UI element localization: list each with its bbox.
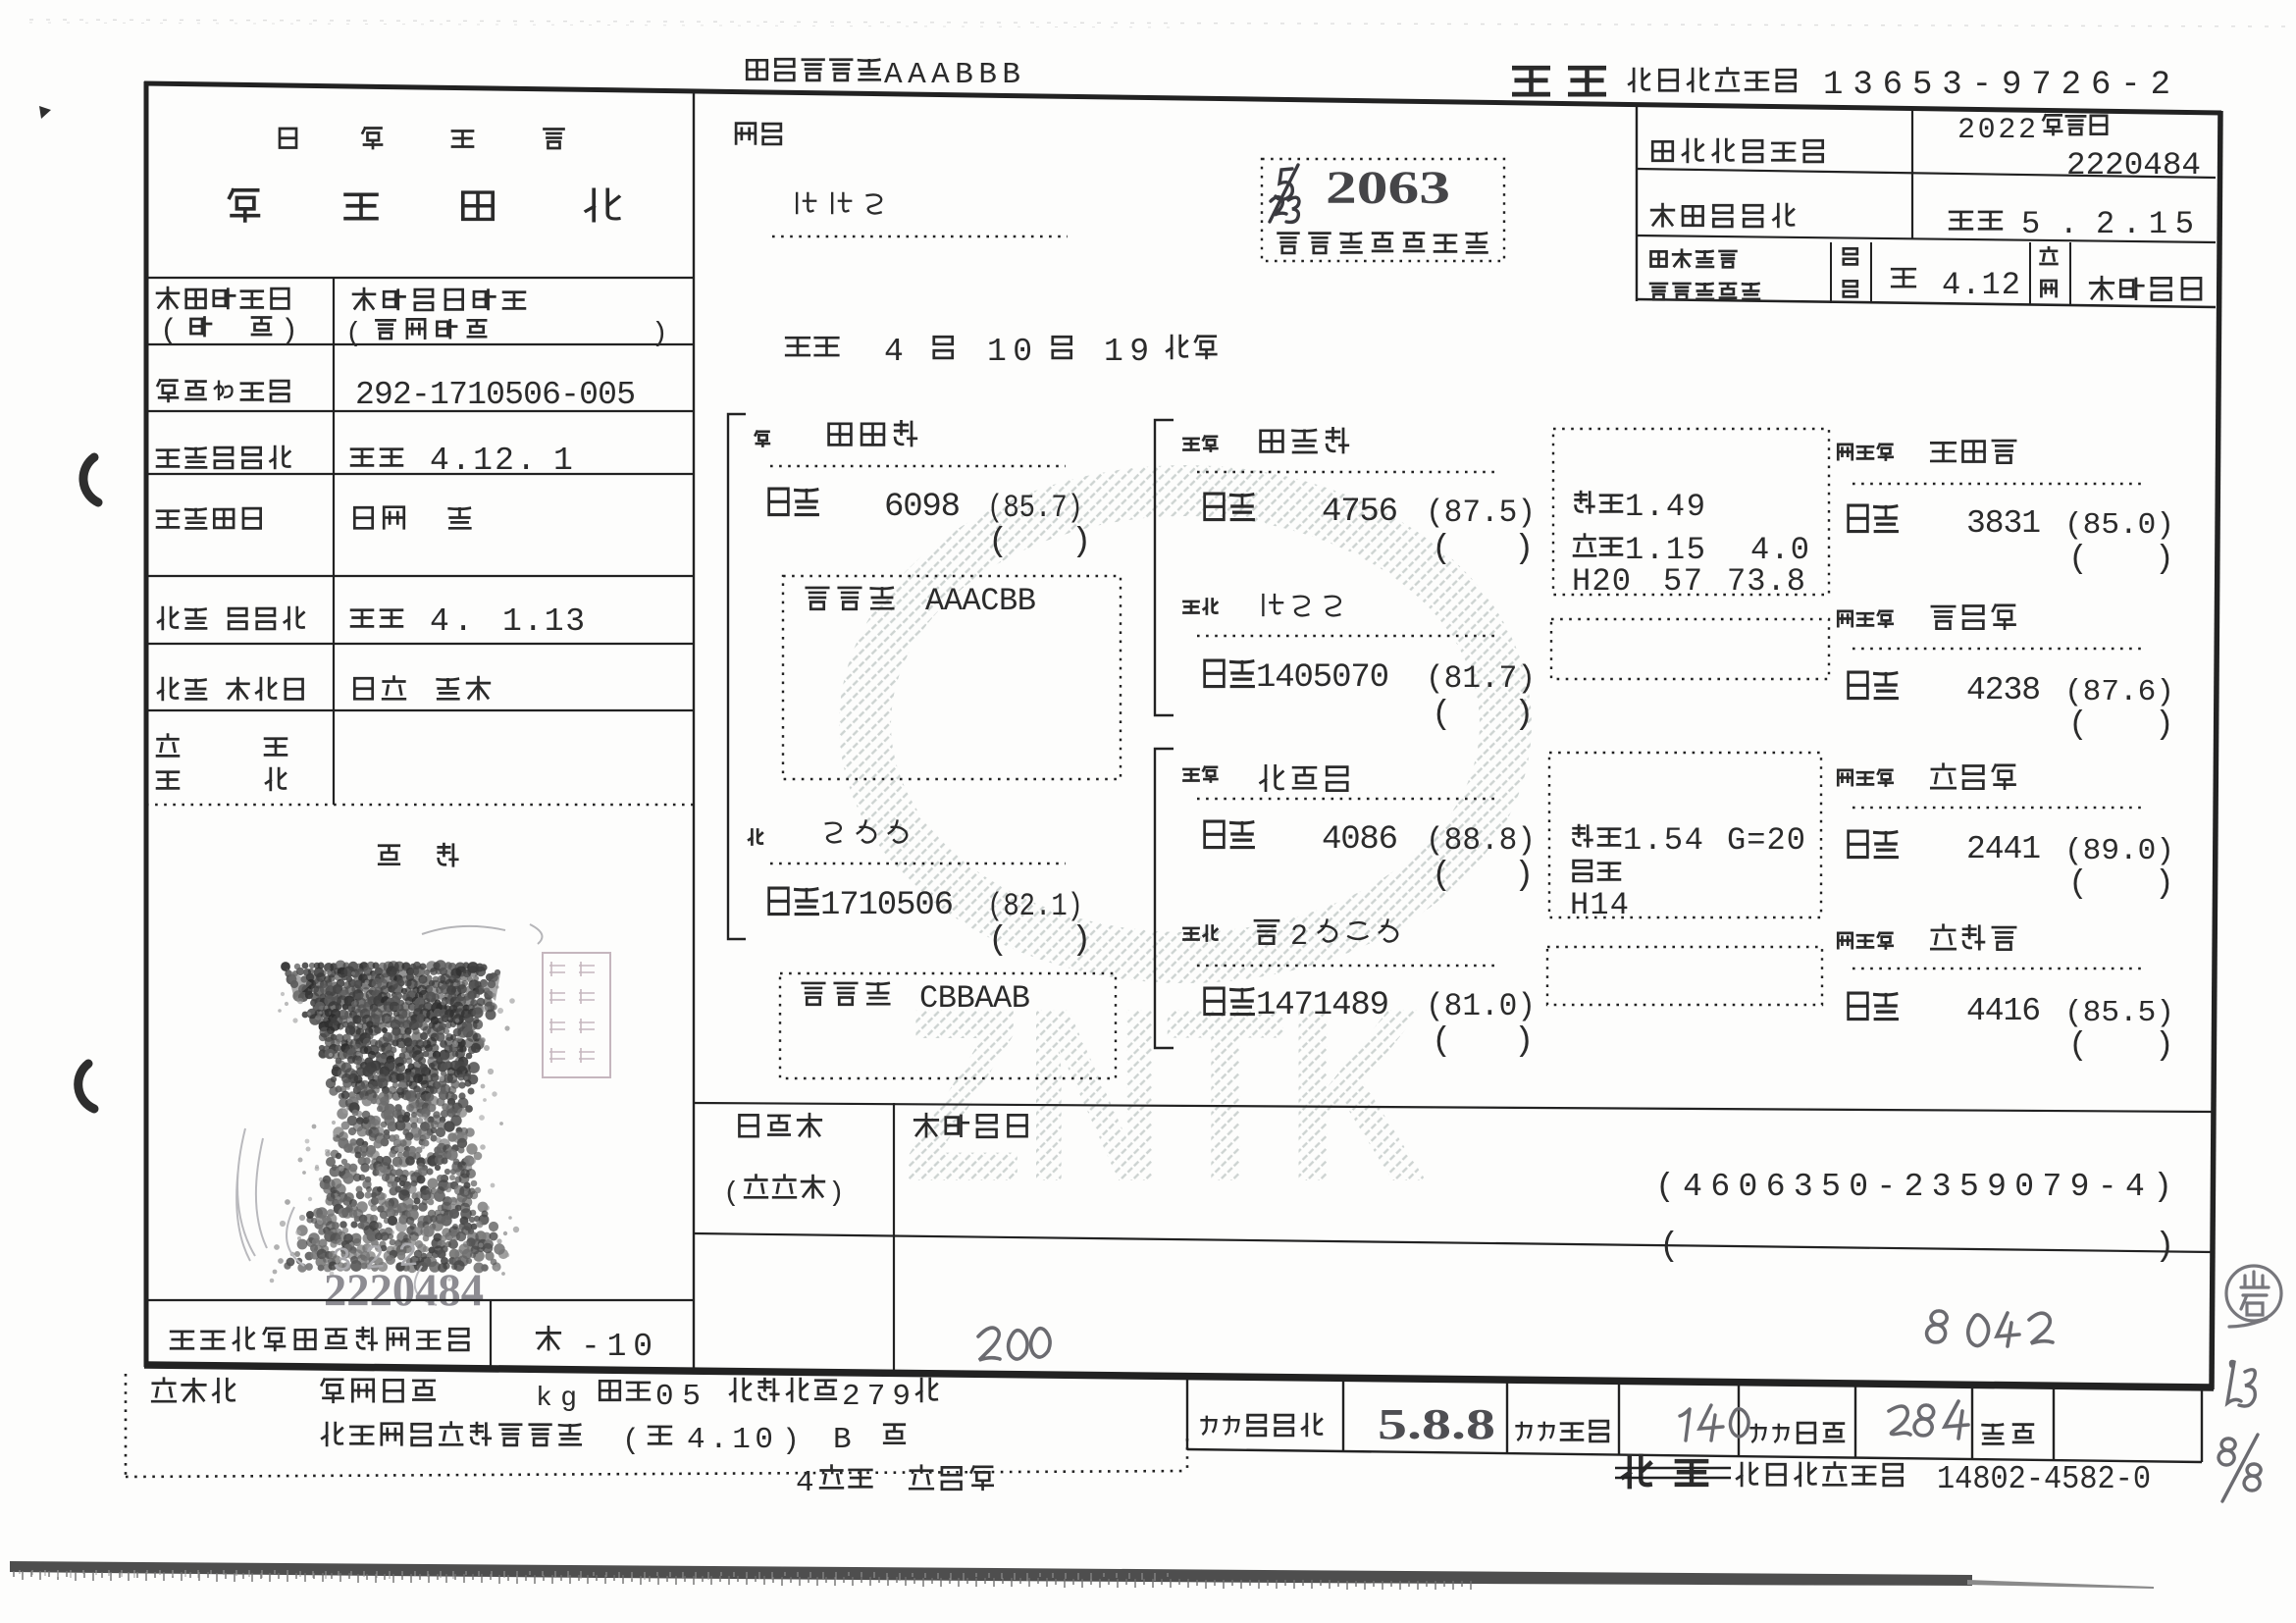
svg-text:(: ( (1659, 1229, 1679, 1266)
svg-text:): ) (1514, 697, 1534, 734)
svg-text:): ) (782, 1425, 800, 1458)
svg-text:(88.8): (88.8) (1426, 822, 1536, 859)
svg-text:): ) (828, 1178, 845, 1209)
svg-text:6098: 6098 (884, 489, 961, 526)
svg-text:1.13: 1.13 (502, 603, 585, 640)
svg-text:4416: 4416 (1966, 993, 2041, 1029)
svg-text:(81.0): (81.0) (1426, 988, 1536, 1024)
svg-text:4756: 4756 (1322, 494, 1398, 531)
svg-text:): ) (2155, 1229, 2174, 1266)
svg-text:1: 1 (553, 443, 573, 479)
svg-text:2441: 2441 (1966, 831, 2041, 867)
svg-text:(: ( (1432, 858, 1451, 895)
svg-text:2: 2 (1290, 920, 1308, 954)
svg-text:(85.0): (85.0) (2064, 508, 2174, 543)
svg-text:(: ( (2068, 865, 2088, 902)
svg-text:3831: 3831 (1966, 505, 2041, 542)
svg-text:(: ( (345, 319, 362, 349)
svg-text:4238: 4238 (1966, 672, 2041, 708)
svg-text:): ) (1514, 858, 1534, 895)
svg-text:2220484: 2220484 (324, 1265, 484, 1316)
svg-text:B: B (833, 1423, 852, 1457)
svg-text:): ) (2155, 1027, 2174, 1064)
svg-text:): ) (2155, 541, 2174, 577)
svg-text:): ) (1514, 1023, 1534, 1061)
svg-text:): ) (1071, 922, 1091, 960)
svg-text:279: 279 (842, 1380, 911, 1414)
svg-text:1471489: 1471489 (1256, 987, 1389, 1024)
svg-text:H20: H20 (1572, 563, 1631, 600)
svg-text:): ) (281, 315, 298, 348)
svg-text:-10: -10 (581, 1329, 652, 1365)
svg-text:4: 4 (884, 334, 904, 370)
svg-text:2220484: 2220484 (2066, 147, 2201, 183)
svg-text:(: ( (622, 1425, 640, 1458)
svg-text:): ) (652, 319, 668, 349)
svg-text:(: ( (1432, 1023, 1451, 1061)
svg-text:1.49: 1.49 (1625, 489, 1705, 525)
svg-text:4.12: 4.12 (1942, 267, 2020, 303)
svg-text:(: ( (988, 922, 1008, 960)
svg-text:(85.5): (85.5) (2064, 996, 2174, 1030)
svg-text:73.8: 73.8 (1727, 563, 1805, 600)
svg-text:14802-4582-0: 14802-4582-0 (1937, 1461, 2151, 1497)
svg-text:57: 57 (1663, 563, 1702, 600)
svg-text:): ) (1514, 531, 1534, 568)
svg-text:5.8.8: 5.8.8 (1378, 1400, 1495, 1448)
svg-text:(87.5): (87.5) (1426, 495, 1536, 531)
svg-text:(: ( (2068, 1027, 2088, 1064)
svg-text:4086: 4086 (1322, 821, 1398, 859)
svg-text:292-1710506-005: 292-1710506-005 (355, 377, 636, 413)
svg-text:H14: H14 (1570, 887, 1629, 923)
svg-text:1710506: 1710506 (820, 887, 954, 924)
svg-text:(87.6): (87.6) (2064, 675, 2174, 709)
svg-text:AAACBB: AAACBB (925, 583, 1036, 619)
svg-text:(: ( (1432, 697, 1451, 734)
svg-text:(82.1): (82.1) (987, 888, 1083, 924)
svg-text:G=20: G=20 (1727, 822, 1805, 859)
svg-text:(: ( (2068, 707, 2088, 743)
svg-text:2063: 2063 (1326, 162, 1450, 214)
svg-text:(: ( (160, 315, 178, 348)
svg-text:(: ( (1432, 531, 1451, 568)
svg-text:): ) (2155, 707, 2174, 743)
svg-text:(: ( (723, 1178, 740, 1209)
svg-text:4: 4 (796, 1466, 814, 1500)
svg-text:): ) (1071, 524, 1091, 561)
svg-text:(: ( (988, 524, 1008, 561)
svg-text:(: ( (2068, 541, 2088, 577)
svg-text:1.54: 1.54 (1623, 822, 1703, 859)
svg-text:4.12.: 4.12. (430, 443, 536, 479)
svg-text:1405070: 1405070 (1256, 659, 1389, 697)
svg-text:(89.0): (89.0) (2064, 834, 2174, 868)
svg-text:): ) (2155, 865, 2174, 902)
svg-text:(85.7): (85.7) (987, 490, 1083, 526)
svg-text:CBBAAB: CBBAAB (919, 980, 1030, 1017)
svg-text:(81.7): (81.7) (1426, 660, 1536, 697)
